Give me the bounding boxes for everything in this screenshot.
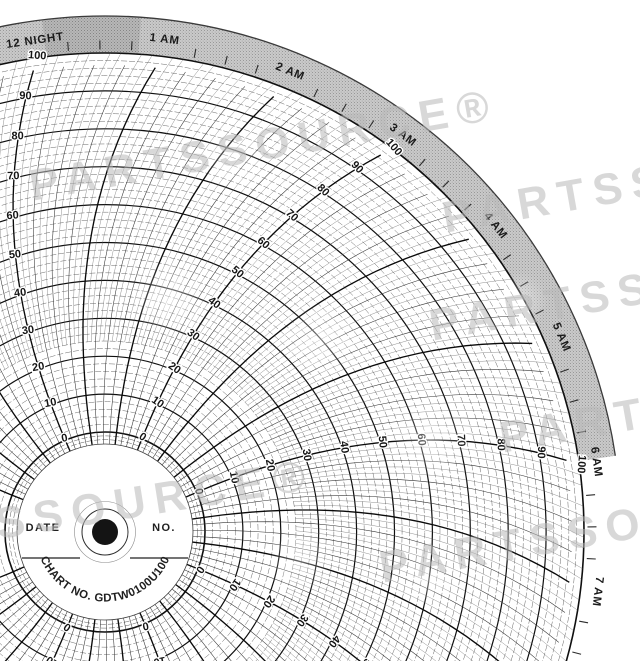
value-label: 30 xyxy=(300,448,314,462)
center-hub: DATE NO. CHART NO. GDTW0100U100 xyxy=(17,444,193,620)
no-label: NO. xyxy=(152,522,176,534)
value-label: 100 xyxy=(575,455,588,474)
value-label: 40 xyxy=(13,286,27,299)
value-label: 50 xyxy=(8,248,21,261)
value-label: 20 xyxy=(31,360,45,374)
value-label: 80 xyxy=(495,438,507,450)
value-label: 30 xyxy=(21,324,35,338)
value-label: 60 xyxy=(415,433,428,446)
value-label: 10 xyxy=(43,396,57,410)
value-label: 70 xyxy=(454,434,467,447)
value-label: 20 xyxy=(263,458,277,472)
rim-tick xyxy=(68,42,69,51)
value-label: 70 xyxy=(7,170,20,183)
circular-chart-recorder-paper-photo: 12 NIGHT1 AM2 AM3 AM4 AM5 AM6 AM7 AM 010… xyxy=(0,0,640,661)
circular-chart-grid: 12 NIGHT1 AM2 AM3 AM4 AM5 AM6 AM7 AM 010… xyxy=(0,0,640,661)
value-label: 80 xyxy=(11,130,23,142)
value-label: 90 xyxy=(535,446,547,459)
value-label: 40 xyxy=(337,440,350,454)
rim-tick xyxy=(586,495,595,496)
value-label: 60 xyxy=(6,209,19,222)
value-label: 50 xyxy=(376,435,389,448)
date-label: DATE xyxy=(26,522,61,534)
value-label: 10 xyxy=(227,470,241,484)
value-label: 90 xyxy=(19,90,32,102)
value-label: 100 xyxy=(28,49,47,62)
center-hole xyxy=(92,519,118,545)
